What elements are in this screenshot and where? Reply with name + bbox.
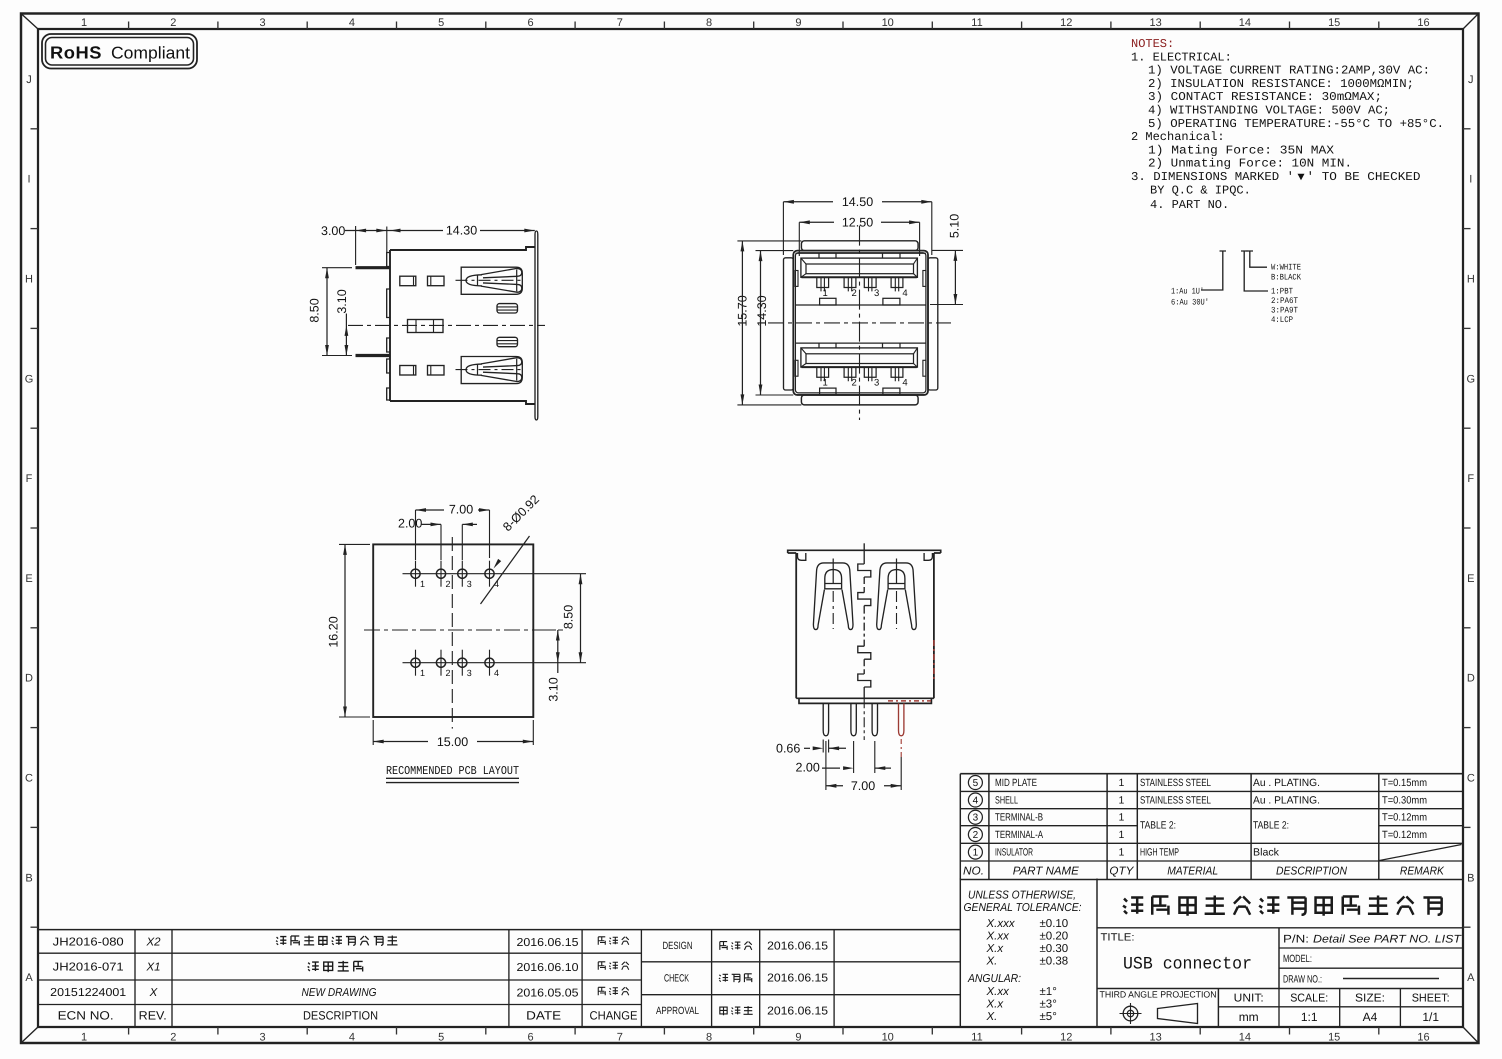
svg-text:±0.38: ±0.38 — [1040, 955, 1069, 967]
svg-text:4) WITHSTANDING VOLTAGE: 500V: 4) WITHSTANDING VOLTAGE: 500V AC; — [1148, 104, 1390, 118]
svg-text:13: 13 — [1149, 1032, 1161, 1044]
svg-text:C: C — [1467, 773, 1475, 785]
svg-text:1: 1 — [823, 288, 828, 299]
svg-text:14.30: 14.30 — [755, 295, 769, 326]
svg-text:6: 6 — [527, 1032, 533, 1044]
svg-text:2016.06.10: 2016.06.10 — [517, 962, 579, 974]
svg-text:B:BLACK: B:BLACK — [1271, 273, 1302, 283]
svg-text:Detail See PART NO. LIST: Detail See PART NO. LIST — [1313, 934, 1462, 946]
svg-text:BY Q.C & IPQC.: BY Q.C & IPQC. — [1150, 183, 1251, 197]
svg-text:20151224001: 20151224001 — [50, 987, 126, 999]
svg-text:ECN NO.: ECN NO. — [58, 1009, 114, 1023]
svg-text:16.20: 16.20 — [327, 616, 341, 647]
svg-text:W:WHITE: W:WHITE — [1271, 263, 1301, 273]
svg-text:4:LCP: 4:LCP — [1271, 315, 1293, 325]
svg-text:4: 4 — [494, 668, 499, 678]
svg-text:THIRD ANGLE PROJECTION: THIRD ANGLE PROJECTION — [1100, 990, 1217, 1000]
svg-text:F: F — [1467, 473, 1474, 485]
svg-text:NO.: NO. — [963, 865, 984, 877]
svg-text:1) Mating Force: 35N MAX: 1) Mating Force: 35N MAX — [1148, 143, 1334, 157]
svg-text:4: 4 — [349, 17, 355, 29]
svg-text:11: 11 — [971, 1032, 982, 1044]
svg-text:G: G — [1467, 373, 1476, 385]
svg-text:PART NAME: PART NAME — [1013, 865, 1079, 877]
svg-text:USB connector: USB connector — [1123, 955, 1252, 975]
svg-text:9: 9 — [795, 1032, 801, 1044]
svg-text:2.00: 2.00 — [796, 761, 820, 775]
svg-text:1: 1 — [1118, 829, 1124, 841]
svg-text:3: 3 — [467, 579, 472, 589]
svg-text:5: 5 — [973, 778, 979, 789]
svg-text:12: 12 — [1060, 1032, 1072, 1044]
svg-text:15: 15 — [1328, 1032, 1340, 1044]
svg-text:7: 7 — [617, 17, 623, 29]
svg-text:±5°: ±5° — [1040, 1011, 1057, 1023]
svg-text:9: 9 — [795, 17, 801, 29]
svg-text:1: 1 — [973, 848, 979, 859]
svg-text:1: 1 — [1118, 795, 1124, 807]
svg-text:APPROVAL: APPROVAL — [656, 1005, 699, 1017]
svg-text:INSULATOR: INSULATOR — [995, 847, 1033, 859]
svg-text:1: 1 — [1118, 847, 1124, 859]
svg-text:1. ELECTRICAL:: 1. ELECTRICAL: — [1131, 50, 1232, 64]
svg-text:STAINLESS STEEL: STAINLESS STEEL — [1140, 795, 1211, 807]
svg-text:10: 10 — [882, 17, 894, 29]
svg-text:X.: X. — [986, 1011, 998, 1023]
svg-text:12: 12 — [1060, 17, 1072, 29]
svg-text:B: B — [1467, 872, 1474, 884]
svg-text:14.50: 14.50 — [842, 195, 873, 209]
svg-text:D: D — [25, 673, 33, 685]
svg-text:ANGULAR:: ANGULAR: — [967, 973, 1021, 985]
svg-text:B: B — [25, 872, 32, 884]
svg-text:1:PBT: 1:PBT — [1271, 287, 1293, 297]
svg-text:±0.20: ±0.20 — [1040, 930, 1069, 942]
svg-text:P/N:: P/N: — [1283, 934, 1309, 946]
svg-text:X.: X. — [986, 955, 998, 967]
svg-text:I: I — [27, 174, 30, 186]
svg-text:8: 8 — [706, 17, 712, 29]
svg-text:REMARK: REMARK — [1400, 865, 1445, 877]
svg-text:1: 1 — [420, 668, 425, 678]
svg-text:X.xx: X.xx — [986, 930, 1011, 942]
svg-text:2) Unmating Force: 10N MIN.: 2) Unmating Force: 10N MIN. — [1148, 157, 1352, 171]
svg-text:1:1: 1:1 — [1301, 1010, 1318, 1024]
svg-text:SHEET:: SHEET: — [1412, 993, 1450, 1005]
svg-text:1:Au 1U': 1:Au 1U' — [1171, 287, 1204, 297]
svg-text:X.xx: X.xx — [986, 986, 1011, 998]
svg-text:±0.10: ±0.10 — [1040, 918, 1069, 930]
svg-text:X.x: X.x — [986, 943, 1005, 955]
svg-text:3.00: 3.00 — [321, 224, 345, 238]
svg-text:3:PA9T: 3:PA9T — [1271, 306, 1298, 316]
svg-text:11: 11 — [971, 17, 982, 29]
svg-text:7: 7 — [617, 1032, 623, 1044]
svg-text:MODEL:: MODEL: — [1283, 953, 1312, 965]
svg-text:X.xxx: X.xxx — [986, 918, 1016, 930]
svg-text:6:Au 30U': 6:Au 30U' — [1171, 298, 1209, 308]
svg-text:2: 2 — [446, 668, 451, 678]
svg-text:GENERAL TOLERANCE:: GENERAL TOLERANCE: — [964, 902, 1082, 914]
svg-text:1: 1 — [1118, 812, 1124, 824]
svg-text:3: 3 — [874, 288, 879, 299]
svg-text:C: C — [25, 773, 33, 785]
svg-text:2016.05.05: 2016.05.05 — [517, 987, 579, 999]
svg-text:QTY: QTY — [1109, 865, 1134, 877]
svg-text:2: 2 — [170, 17, 176, 29]
svg-text:DESCRIPTION: DESCRIPTION — [1276, 865, 1348, 877]
svg-text:SIZE:: SIZE: — [1355, 993, 1385, 1005]
svg-text:E: E — [25, 573, 32, 585]
svg-text:2: 2 — [973, 830, 979, 841]
svg-text:14: 14 — [1239, 17, 1251, 29]
svg-text:15.00: 15.00 — [437, 735, 468, 749]
svg-text:D: D — [1467, 673, 1475, 685]
svg-text:CHANGE: CHANGE — [590, 1009, 638, 1023]
svg-text:5) OPERATING TEMPERATURE:-55°C: 5) OPERATING TEMPERATURE:-55°C TO +85°C. — [1148, 117, 1444, 131]
svg-text:16: 16 — [1417, 17, 1429, 29]
svg-text:3: 3 — [260, 1032, 266, 1044]
svg-text:5: 5 — [438, 1032, 444, 1044]
svg-text:A: A — [25, 972, 33, 984]
svg-text:7.00: 7.00 — [449, 503, 473, 517]
svg-text:TITLE:: TITLE: — [1101, 932, 1135, 944]
svg-text:5: 5 — [438, 17, 444, 29]
svg-text:4: 4 — [349, 1032, 355, 1044]
svg-text:Au . PLATING.: Au . PLATING. — [1253, 777, 1320, 789]
svg-text:CHECK: CHECK — [664, 973, 689, 985]
svg-text:A4: A4 — [1363, 1010, 1378, 1024]
svg-text:I: I — [1469, 174, 1472, 186]
svg-text:2 Mechanical:: 2 Mechanical: — [1131, 130, 1225, 144]
svg-text:MID PLATE: MID PLATE — [995, 777, 1037, 789]
svg-text:A: A — [1467, 972, 1475, 984]
svg-text:3) CONTACT RESISTANCE: 30mΩMAX: 3) CONTACT RESISTANCE: 30mΩMAX; — [1148, 90, 1382, 104]
svg-text:4: 4 — [902, 378, 907, 389]
svg-text:TABLE 2:: TABLE 2: — [1140, 820, 1176, 832]
svg-text:DESIGN: DESIGN — [663, 940, 693, 952]
svg-text:RECOMMENDED PCB LAYOUT: RECOMMENDED PCB LAYOUT — [386, 764, 519, 778]
svg-text:Au . PLATING.: Au . PLATING. — [1253, 795, 1320, 807]
svg-text:TABLE 2:: TABLE 2: — [1253, 820, 1289, 832]
svg-text:TERMINAL-B: TERMINAL-B — [995, 812, 1043, 824]
svg-text:Black: Black — [1253, 847, 1280, 859]
svg-text:UNIT:: UNIT: — [1234, 993, 1264, 1005]
svg-text:2: 2 — [446, 579, 451, 589]
svg-text:2: 2 — [170, 1032, 176, 1044]
svg-text:8.50: 8.50 — [562, 605, 576, 629]
svg-text:3.10: 3.10 — [335, 289, 349, 313]
svg-text:T=0.15mm: T=0.15mm — [1382, 777, 1427, 789]
svg-text:0.66: 0.66 — [776, 741, 800, 755]
svg-text:F: F — [26, 473, 33, 485]
svg-text:2.00: 2.00 — [398, 516, 422, 530]
svg-text:REV.: REV. — [139, 1009, 167, 1023]
svg-text:±1°: ±1° — [1040, 986, 1057, 998]
svg-text:DATE: DATE — [526, 1009, 561, 1023]
svg-text:3. DIMENSIONS MARKED ': 3. DIMENSIONS MARKED ' — [1131, 170, 1294, 184]
svg-text:4: 4 — [973, 796, 979, 807]
svg-text:2: 2 — [851, 288, 856, 299]
svg-text:12.50: 12.50 — [842, 215, 873, 229]
svg-text:±3°: ±3° — [1040, 999, 1057, 1011]
svg-text:HIGH TEMP: HIGH TEMP — [1140, 847, 1179, 859]
svg-text:13: 13 — [1149, 17, 1161, 29]
svg-text:Compliant: Compliant — [111, 44, 190, 63]
svg-text:UNLESS OTHERWISE,: UNLESS OTHERWISE, — [968, 890, 1076, 902]
svg-text:2016.06.15: 2016.06.15 — [517, 937, 579, 949]
svg-text:SHELL: SHELL — [995, 795, 1018, 807]
svg-text:1/1: 1/1 — [1422, 1010, 1439, 1024]
svg-text:DESCRIPTION: DESCRIPTION — [303, 1009, 378, 1023]
svg-text:SCALE:: SCALE: — [1290, 993, 1328, 1005]
svg-text:E: E — [1467, 573, 1474, 585]
svg-text:2016.06.15: 2016.06.15 — [767, 1005, 828, 1017]
svg-text:8: 8 — [706, 1032, 712, 1044]
svg-text:1: 1 — [420, 579, 425, 589]
svg-text:2016.06.15: 2016.06.15 — [767, 973, 828, 985]
svg-text:14.30: 14.30 — [446, 223, 477, 237]
svg-text:X.x: X.x — [986, 999, 1005, 1011]
svg-text:2) INSULATION RESISTANCE: 1000: 2) INSULATION RESISTANCE: 1000MΩMIN; — [1148, 77, 1414, 91]
svg-text:16: 16 — [1417, 1032, 1429, 1044]
svg-text:1) VOLTAGE CURRENT RATING:2AMP: 1) VOLTAGE CURRENT RATING:2AMP,30V AC: — [1148, 64, 1430, 78]
svg-text:NEW DRAWING: NEW DRAWING — [302, 987, 377, 999]
svg-text:15: 15 — [1328, 17, 1340, 29]
svg-text:STAINLESS STEEL: STAINLESS STEEL — [1140, 777, 1211, 789]
svg-text:G: G — [25, 373, 34, 385]
svg-text:T=0.30mm: T=0.30mm — [1382, 795, 1427, 807]
svg-text:±0.30: ±0.30 — [1040, 943, 1069, 955]
svg-text:mm: mm — [1239, 1010, 1259, 1024]
svg-text:' TO BE CHECKED: ' TO BE CHECKED — [1307, 170, 1421, 184]
svg-text:14: 14 — [1239, 1032, 1251, 1044]
svg-text:J: J — [26, 74, 32, 86]
svg-text:X: X — [149, 987, 159, 999]
svg-text:7.00: 7.00 — [851, 779, 875, 793]
svg-text:NOTES:: NOTES: — [1131, 37, 1174, 51]
svg-text:TERMINAL-A: TERMINAL-A — [995, 829, 1043, 841]
svg-text:2: 2 — [851, 378, 856, 389]
svg-text:1: 1 — [823, 378, 828, 389]
svg-text:H: H — [1467, 274, 1475, 286]
svg-text:3: 3 — [260, 17, 266, 29]
svg-text:8.50: 8.50 — [308, 298, 322, 322]
svg-text:3: 3 — [467, 668, 472, 678]
svg-text:3: 3 — [874, 378, 879, 389]
svg-text:4. PART NO.: 4. PART NO. — [1150, 198, 1229, 212]
svg-text:6: 6 — [527, 17, 533, 29]
svg-text:J: J — [1468, 74, 1474, 86]
svg-text:JH2016-071: JH2016-071 — [53, 962, 124, 974]
svg-text:H: H — [25, 274, 33, 286]
svg-text:X2: X2 — [145, 937, 161, 949]
svg-text:3.10: 3.10 — [546, 677, 560, 701]
svg-text:MATERIAL: MATERIAL — [1167, 865, 1218, 877]
svg-text:3: 3 — [973, 813, 979, 824]
svg-text:X1: X1 — [145, 962, 160, 974]
svg-text:RoHS: RoHS — [50, 43, 102, 63]
svg-text:4: 4 — [902, 288, 907, 299]
svg-text:1: 1 — [81, 1032, 87, 1044]
svg-text:2016.06.15: 2016.06.15 — [767, 940, 828, 952]
svg-text:1: 1 — [81, 17, 87, 29]
svg-text:DRAW NO.:: DRAW NO.: — [1283, 974, 1322, 986]
svg-text:2:PA6T: 2:PA6T — [1271, 296, 1298, 306]
svg-text:JH2016-080: JH2016-080 — [53, 937, 124, 949]
svg-text:10: 10 — [882, 1032, 894, 1044]
svg-text:T=0.12mm: T=0.12mm — [1382, 812, 1427, 824]
svg-text:1: 1 — [1118, 777, 1124, 789]
svg-text:T=0.12mm: T=0.12mm — [1382, 829, 1427, 841]
svg-text:5.10: 5.10 — [948, 214, 962, 238]
